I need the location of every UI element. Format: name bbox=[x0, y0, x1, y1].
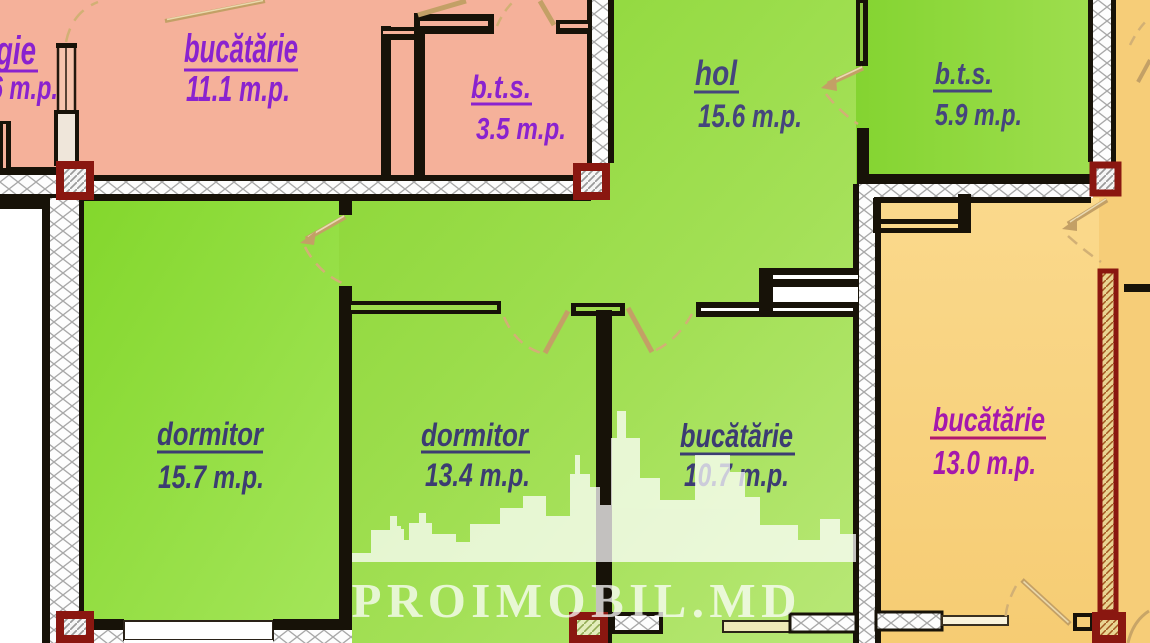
svg-text:bucătărie: bucătărie bbox=[680, 417, 793, 454]
svg-text:5.9 m.p.: 5.9 m.p. bbox=[935, 97, 1022, 132]
svg-text:13.4 m.p.: 13.4 m.p. bbox=[425, 457, 530, 493]
svg-text:15.7 m.p.: 15.7 m.p. bbox=[158, 459, 264, 495]
svg-text:4.6 m.p.: 4.6 m.p. bbox=[0, 69, 58, 106]
svg-text:PROIMOBIL.MD: PROIMOBIL.MD bbox=[352, 573, 797, 628]
svg-text:bucătărie: bucătărie bbox=[933, 401, 1045, 438]
svg-text:b.t.s.: b.t.s. bbox=[471, 69, 531, 105]
svg-text:3.5 m.p.: 3.5 m.p. bbox=[476, 111, 566, 146]
svg-text:13.0 m.p.: 13.0 m.p. bbox=[933, 444, 1036, 481]
svg-text:bucătărie: bucătărie bbox=[184, 27, 298, 71]
svg-text:15.6 m.p.: 15.6 m.p. bbox=[698, 98, 802, 134]
svg-text:dormitor: dormitor bbox=[421, 417, 529, 453]
svg-text:11.1 m.p.: 11.1 m.p. bbox=[186, 68, 290, 109]
svg-text:b.t.s.: b.t.s. bbox=[935, 56, 992, 91]
svg-text:hol: hol bbox=[695, 54, 738, 93]
svg-text:gie: gie bbox=[0, 29, 36, 73]
svg-text:dormitor: dormitor bbox=[157, 416, 264, 452]
